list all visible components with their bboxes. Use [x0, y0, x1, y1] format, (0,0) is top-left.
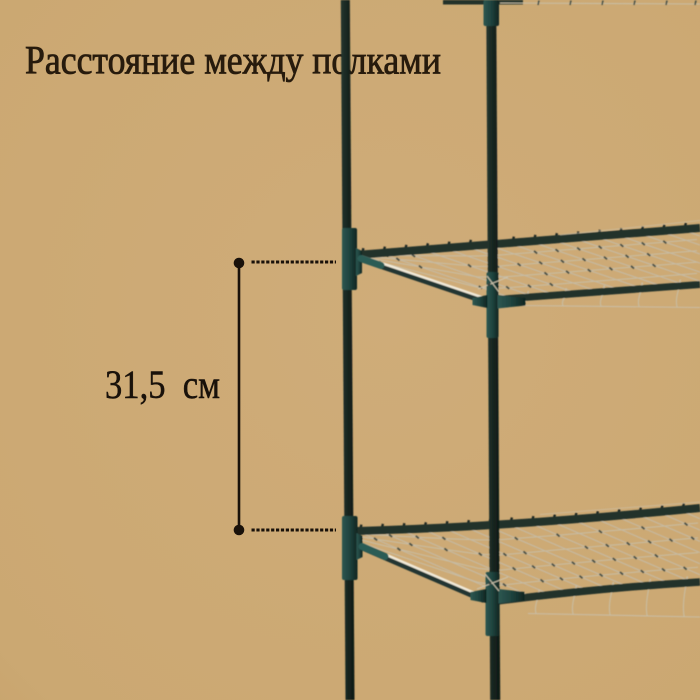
svg-text:Расстояние между полками: Расстояние между полками [25, 38, 441, 83]
svg-text:31,5 см: 31,5 см [105, 362, 220, 407]
